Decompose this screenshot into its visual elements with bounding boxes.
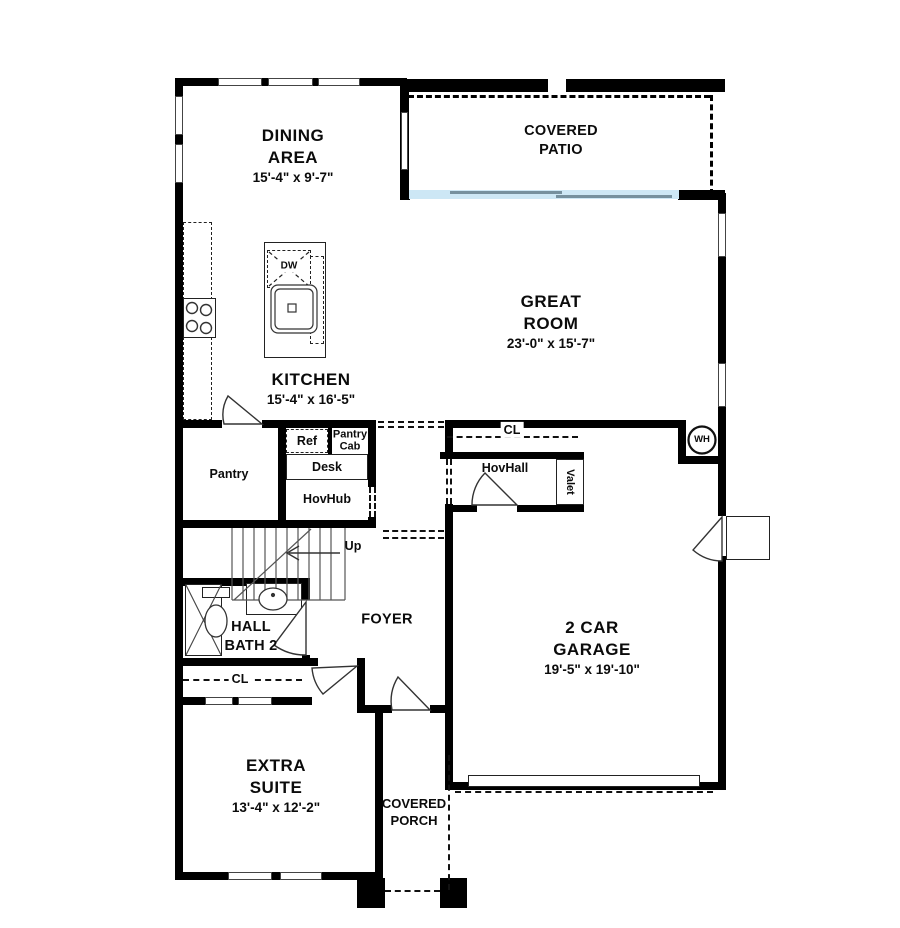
wall-bath-bottom <box>175 658 318 666</box>
pantry-text: Pantry <box>210 466 249 482</box>
toilet-tank <box>202 587 230 598</box>
window <box>175 144 183 183</box>
porch-line1: COVERED <box>382 796 446 813</box>
suite-line2: SUITE <box>232 777 320 799</box>
water-heater-label: WH <box>694 434 710 446</box>
hovhall-label: HovHall <box>482 460 529 476</box>
dining-line2: AREA <box>253 147 334 169</box>
ref-text: Ref <box>297 433 317 449</box>
patio-roof-dash-top <box>408 95 710 98</box>
sliding-door-panel <box>450 191 562 194</box>
up-text: Up <box>345 538 362 554</box>
garage-door <box>468 775 700 787</box>
foyer-label: FOYER <box>361 611 412 630</box>
window <box>268 78 313 86</box>
bath-line1: HALL <box>224 618 277 637</box>
wall-garage-top <box>445 420 685 428</box>
valet-label: Valet <box>563 469 577 495</box>
wall-porch-pier-right <box>440 878 467 908</box>
porch-line2: PORCH <box>382 813 446 830</box>
kitchen-line1: KITCHEN <box>267 369 355 391</box>
window <box>718 363 726 407</box>
valet-text: Valet <box>563 469 577 495</box>
wall-bath-right-a <box>302 578 310 600</box>
garage-label: 2 CAR GARAGE 19'-5" x 19'-10" <box>544 617 640 679</box>
garage-side-door-opening <box>718 516 726 556</box>
wh-text: WH <box>694 434 710 446</box>
window <box>218 78 262 86</box>
hovhub-dash-2 <box>374 487 376 517</box>
wall-left <box>175 78 183 880</box>
wall-ref-cab-divider <box>328 428 332 454</box>
suite-dims: 13'-4" x 12'-2" <box>232 799 320 817</box>
cl-lower-label: CL <box>229 671 252 687</box>
wall-suite-bottom <box>175 872 383 880</box>
floor-plan: DINING AREA 15'-4" x 9'-7" COVERED PATIO… <box>0 0 900 928</box>
suite-door <box>312 666 357 694</box>
extra-suite-label: EXTRA SUITE 13'-4" x 12'-2" <box>232 755 320 817</box>
wall-top-patio-left <box>400 79 548 92</box>
pantry-cab-line2: Cab <box>333 441 367 453</box>
hall-opening-dash-2 <box>378 426 444 428</box>
garage-side-landing <box>726 516 770 560</box>
garage-door-dash <box>455 791 713 793</box>
sliding-door-panel <box>556 195 672 198</box>
hovhub-text: HovHub <box>303 491 351 507</box>
pantry-cab-label: Pantry Cab <box>333 429 367 452</box>
window <box>318 78 360 86</box>
island-cabinet-dash <box>310 256 324 344</box>
wall-stairs-top <box>175 520 376 528</box>
window <box>205 697 233 705</box>
wall-front-a <box>357 705 392 713</box>
window <box>401 112 408 170</box>
dining-dims: 15'-4" x 9'-7" <box>253 169 334 187</box>
foyer-opening-dash-1 <box>383 530 444 532</box>
wall-porch-pier-left <box>357 878 385 908</box>
desk-label: Desk <box>312 459 342 475</box>
wall-wh-bottom <box>678 456 726 464</box>
wall-cl-bottom <box>440 452 584 459</box>
dining-area-label: DINING AREA 15'-4" x 9'-7" <box>253 125 334 187</box>
bath-line2: BATH 2 <box>224 637 277 656</box>
porch-edge-dash-bottom <box>385 890 440 892</box>
great-line2: ROOM <box>507 313 595 335</box>
patio-line2: PATIO <box>524 141 598 160</box>
patio-roof-dash-right <box>710 95 713 195</box>
patio-line1: COVERED <box>524 122 598 141</box>
hovhall-text: HovHall <box>482 460 529 476</box>
pantry-door <box>223 396 262 424</box>
window <box>228 872 272 880</box>
garage-dims: 19'-5" x 19'-10" <box>544 661 640 679</box>
dishwasher-label: DW <box>278 260 301 273</box>
wall-hovhall-bottom-b <box>517 505 584 512</box>
wall-top-patio-right <box>566 79 725 92</box>
window <box>175 96 183 135</box>
wall-kitchen-bottom-a <box>175 420 222 428</box>
pantry-cab-line1: Pantry <box>333 429 367 441</box>
hovhall-entry-dash-2 <box>450 459 452 504</box>
wall-right <box>718 193 726 790</box>
wall-hub-left <box>278 420 286 528</box>
kitchen-label: KITCHEN 15'-4" x 16'-5" <box>267 369 355 409</box>
covered-porch-label: COVERED PORCH <box>382 796 446 830</box>
great-room-label: GREAT ROOM 23'-0" x 15'-7" <box>507 291 595 353</box>
covered-patio-label: COVERED PATIO <box>524 122 598 160</box>
front-door <box>391 677 430 710</box>
cl-upper-label: CL <box>501 422 524 438</box>
hovhall-entry-dash-1 <box>446 459 448 504</box>
hovhall-door <box>472 473 517 505</box>
up-arrow <box>287 546 340 560</box>
up-label: Up <box>345 538 362 554</box>
garage-line1: 2 CAR <box>544 617 640 639</box>
porch-edge-dash-right <box>448 755 450 890</box>
window <box>238 697 272 705</box>
foyer-opening-dash-2 <box>383 537 444 539</box>
desk-text: Desk <box>312 459 342 475</box>
dining-line1: DINING <box>253 125 334 147</box>
great-dims: 23'-0" x 15'-7" <box>507 335 595 353</box>
hovhub-label: HovHub <box>303 491 351 507</box>
ref-label: Ref <box>297 433 317 449</box>
foyer-text: FOYER <box>361 611 412 630</box>
hovhub-dash-1 <box>369 487 371 517</box>
wall-hovhall-bottom-a <box>445 505 477 512</box>
cl-upper-text: CL <box>501 422 524 438</box>
kitchen-dims: 15'-4" x 16'-5" <box>267 391 355 409</box>
hall-bath-label: HALL BATH 2 <box>224 618 277 656</box>
dw-text: DW <box>278 260 301 273</box>
hall-opening-dash-1 <box>378 421 444 423</box>
garage-line2: GARAGE <box>544 639 640 661</box>
pantry-label: Pantry <box>210 466 249 482</box>
wall-front-b <box>430 705 453 713</box>
cl-lower-text: CL <box>229 671 252 687</box>
suite-line1: EXTRA <box>232 755 320 777</box>
window <box>718 213 726 257</box>
great-line1: GREAT <box>507 291 595 313</box>
window <box>280 872 322 880</box>
bath-vanity <box>246 583 302 615</box>
cooktop <box>183 298 216 338</box>
